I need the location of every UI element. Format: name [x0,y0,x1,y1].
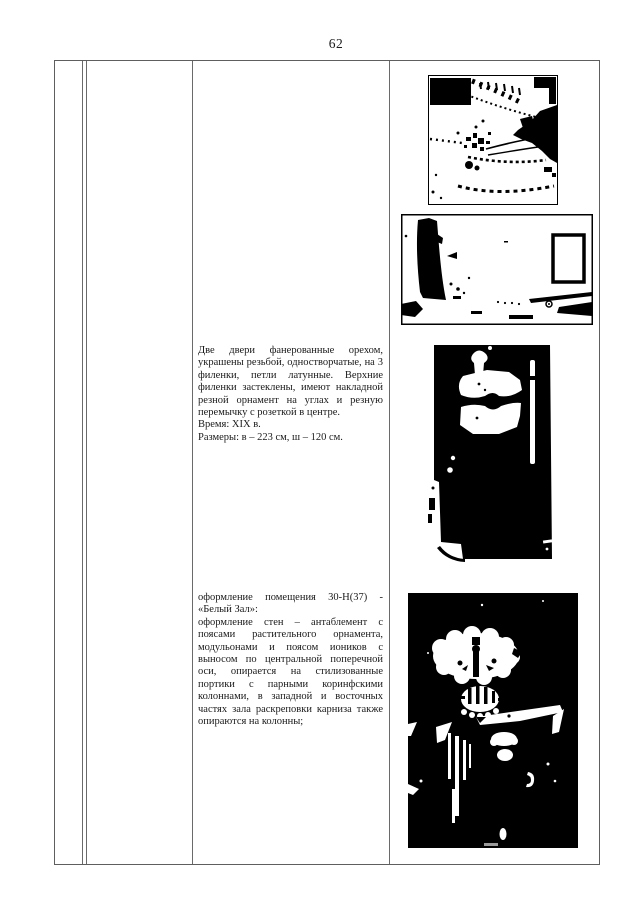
entry-1-text: Две двери фанерованные орехом, украшены … [198,345,383,444]
entry-2-description: оформление стен – антаблемент с поясами … [198,617,383,729]
inventory-table: Две двери фанерованные орехом, украшены … [54,60,600,865]
entry-2-text: оформление помещения 30-Н(37) - «Белый З… [198,592,383,728]
cornice-dentil-fragment-photo [428,75,558,205]
entry-2-title: оформление помещения 30-Н(37) - «Белый З… [198,592,383,617]
carved-walnut-door-photo [427,340,560,565]
cornice-photo-graphic [428,75,558,205]
page-number: 62 [306,36,366,52]
column-divider-3 [389,61,390,864]
wall-photo-graphic [401,214,593,325]
hall-wall-with-frame-photo [401,214,593,325]
white-hall-plafond-photo [408,593,578,848]
entry-1-description: Две двери фанерованные орехом, украшены … [198,345,383,419]
white-hall-photo-graphic [408,593,578,848]
entry-1-time: Время: XIX в. [198,419,383,431]
scanned-document-page: 62 Две двери фанерованные орехом, украше… [0,0,640,905]
column-divider-double [82,61,87,864]
door-photo-graphic [427,340,560,565]
entry-1-size: Размеры: в – 223 см, ш – 120 см. [198,432,383,444]
column-divider-2 [192,61,193,864]
